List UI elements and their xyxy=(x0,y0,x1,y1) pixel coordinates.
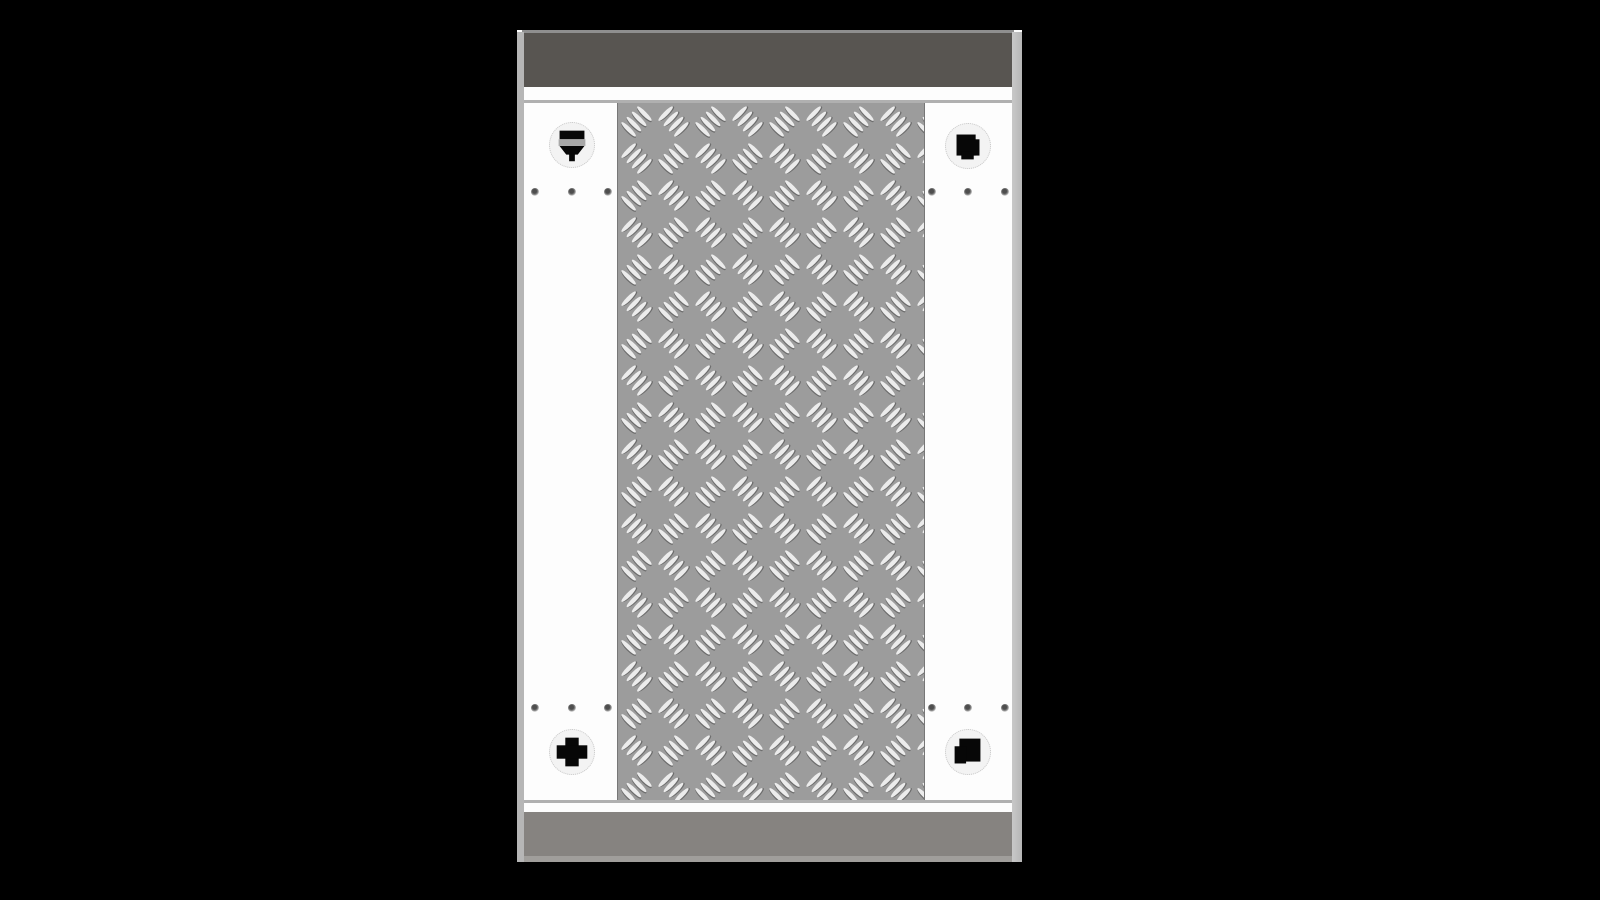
screw-dot xyxy=(1001,188,1009,196)
tread-plate xyxy=(617,103,925,800)
clover-bolt-icon xyxy=(946,124,990,168)
left-side-panel xyxy=(524,103,617,800)
left-edge-strip xyxy=(517,32,524,862)
right-side-panel xyxy=(925,103,1012,800)
bottom-edge-lip xyxy=(524,856,1012,862)
screw-dot xyxy=(964,704,972,712)
deck-area xyxy=(524,103,1012,800)
screw-dot xyxy=(604,188,612,196)
screw-dot xyxy=(531,188,539,196)
platform-unit xyxy=(517,30,1022,862)
black-backdrop xyxy=(0,0,1600,900)
top-rail xyxy=(524,33,1012,87)
screw-dot xyxy=(964,188,972,196)
screw-dot xyxy=(1001,704,1009,712)
screw-dot xyxy=(928,188,936,196)
bottom-white-strip xyxy=(524,803,1012,812)
anchor-hole-bottom-right xyxy=(945,729,991,775)
cross-bolt-icon xyxy=(550,730,594,774)
anchor-hole-top-right xyxy=(945,123,991,169)
bottom-rail xyxy=(524,812,1012,856)
square-bolt-icon xyxy=(946,730,990,774)
anchor-hole-top-left xyxy=(549,122,595,168)
screw-dot xyxy=(568,704,576,712)
anchor-hole-bottom-left xyxy=(549,729,595,775)
diamond-plate-pattern xyxy=(618,103,924,800)
screw-dot xyxy=(568,188,576,196)
slotted-bolt-icon xyxy=(550,123,594,167)
screw-dot xyxy=(604,704,612,712)
screw-dot xyxy=(531,704,539,712)
top-white-strip xyxy=(524,87,1012,100)
right-edge-strip xyxy=(1012,32,1022,862)
screw-dot xyxy=(928,704,936,712)
